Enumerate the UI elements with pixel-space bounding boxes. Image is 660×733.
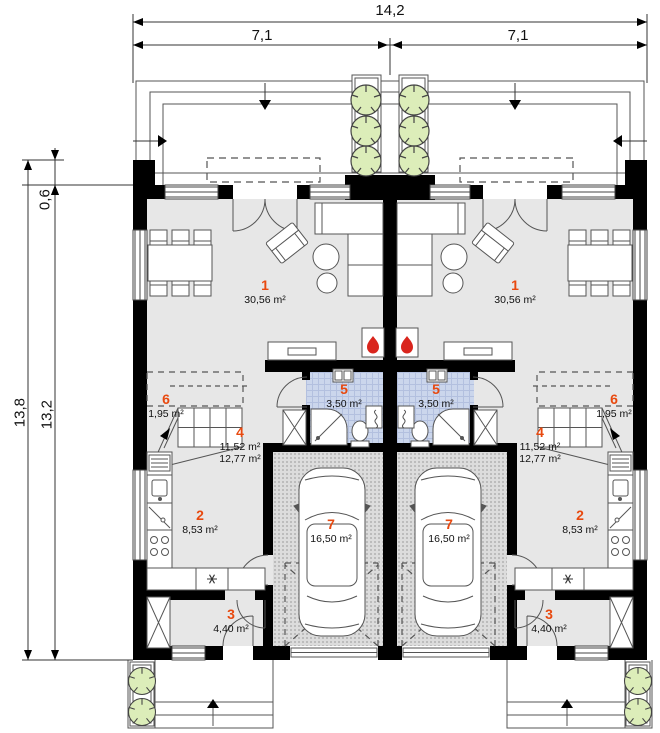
floor-plan-page: 14,2 7,1 7,1 13,8 13,2 0,6 1 30,56 m² 2 … (0, 0, 660, 733)
terrace-outline (133, 81, 647, 185)
floor-plan-drawing (0, 0, 660, 733)
